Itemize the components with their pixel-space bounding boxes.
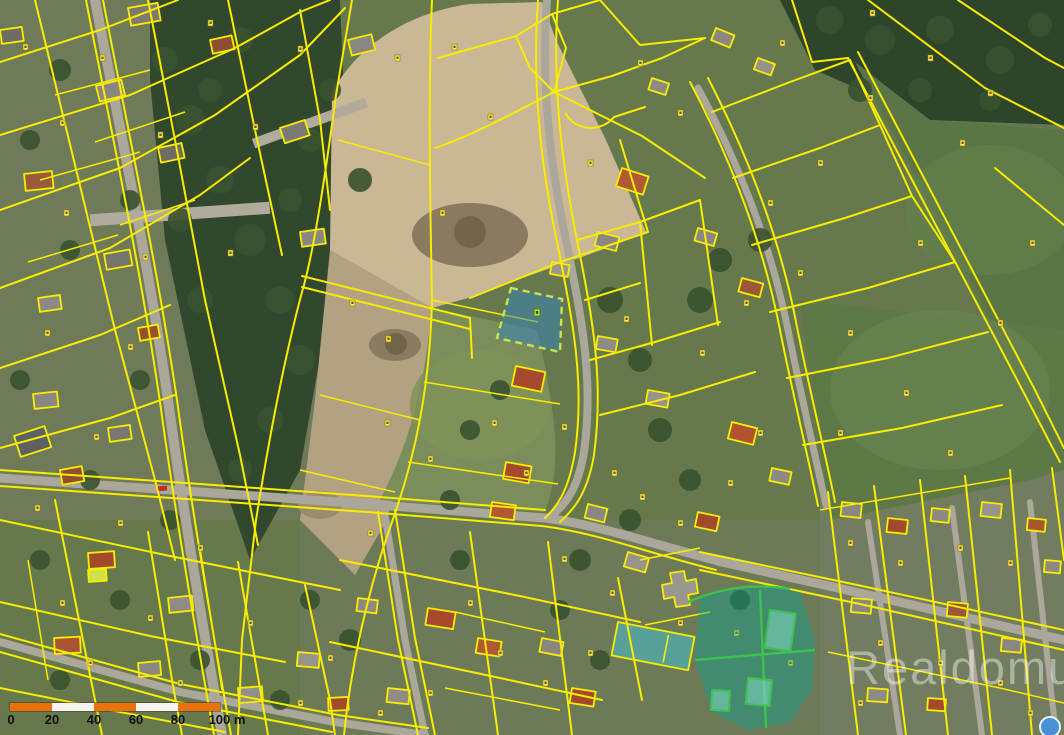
scale-bar	[10, 703, 220, 711]
scale-segment	[94, 703, 136, 711]
scale-segment	[178, 703, 220, 711]
car	[158, 486, 167, 492]
scale-tick-label: 80	[171, 712, 185, 727]
scale-tick-label: 40	[87, 712, 101, 727]
scale-bar-labels: 0 20 40 60 80 100 m	[0, 712, 260, 728]
scale-tick-label: 100 m	[209, 712, 246, 727]
scale-segment	[52, 703, 94, 711]
terrain-layer	[0, 0, 1064, 735]
scale-tick-label: 20	[45, 712, 59, 727]
cadastral-map-canvas[interactable]	[0, 0, 1064, 735]
scale-tick-label: 0	[7, 712, 14, 727]
selected-parcel-marker	[534, 309, 540, 316]
map-viewport[interactable]: 0 20 40 60 80 100 m Realdomus	[0, 0, 1064, 735]
scale-segment	[136, 703, 178, 711]
scale-segment	[10, 703, 52, 711]
map-control-button[interactable]	[1039, 716, 1061, 735]
scale-tick-label: 60	[129, 712, 143, 727]
